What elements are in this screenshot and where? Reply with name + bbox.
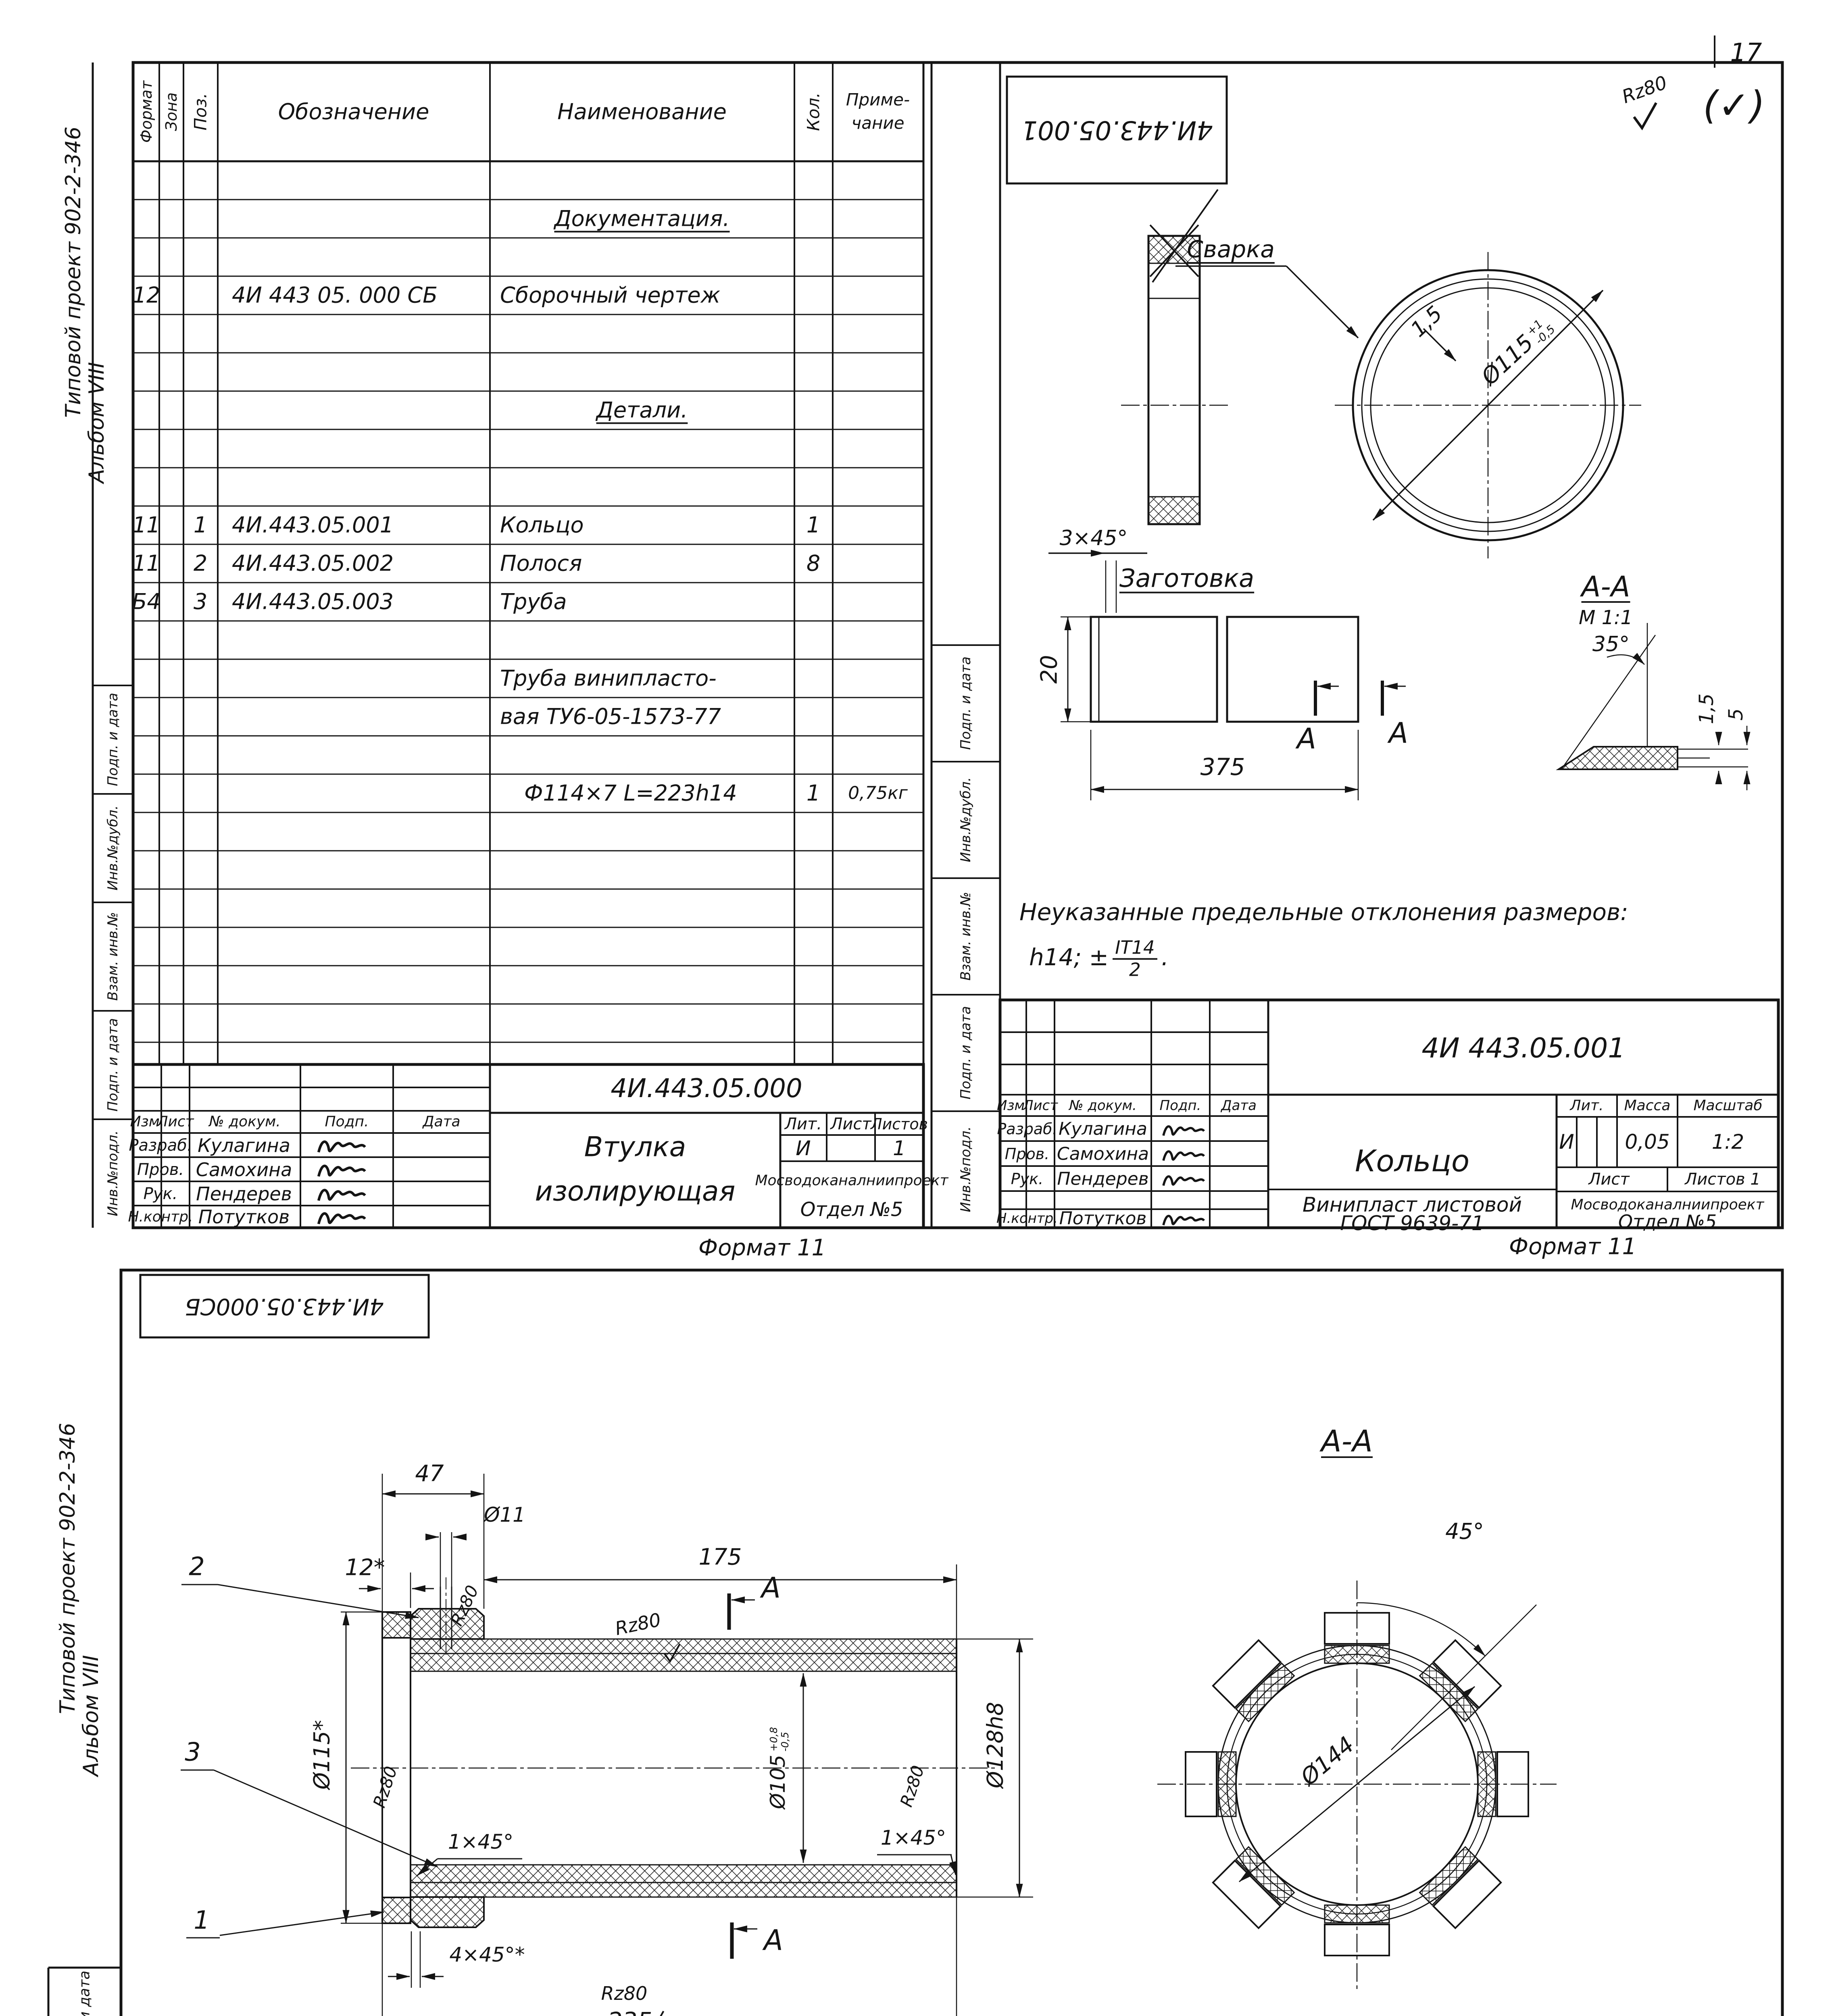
section-aa-scale: М 1:1 (1579, 606, 1633, 629)
spec-row-poz: 1 (194, 512, 207, 538)
frame-col-label: Инв.№подл. (105, 1131, 121, 1216)
spec-header-kol: Кол. (804, 92, 823, 131)
frame-col-label: Взам. инв.№ (105, 912, 121, 1001)
spec-row-poz: 2 (194, 551, 207, 576)
spec-header-primechanie: чание (851, 113, 904, 133)
spec-row-format: 11 (133, 551, 160, 576)
leader-pos-2: 2 (189, 1552, 204, 1581)
spec-row-name: Кольцо (500, 512, 584, 538)
spec-row-name: Ф114×7 L=223h14 (524, 781, 737, 806)
section-mark-a: А (1297, 722, 1316, 755)
spec-header-naimenovanie: Наименование (557, 99, 727, 125)
dim-45deg: 45° (1445, 1519, 1484, 1544)
tb-role: Рук. (1011, 1170, 1043, 1188)
dim-d128: Ø128h8 (983, 1702, 1008, 1788)
tb-role: Пров. (137, 1160, 184, 1179)
tb-list-header: Лист (1588, 1170, 1629, 1189)
tb-scale-header: Масштаб (1693, 1098, 1762, 1114)
frame-col-label: Подп. и дата (77, 1970, 93, 2016)
tb-role: Рук. (144, 1185, 178, 1203)
titleblock-part-name: Кольцо (1355, 1144, 1469, 1179)
spec-header-poz: Поз. (191, 93, 210, 131)
tb-person: Кулагина (1059, 1119, 1147, 1139)
spec-header-oboznachenie: Обозначение (278, 99, 429, 125)
tb-person: Потутков (198, 1206, 290, 1228)
tb-person: Потутков (1059, 1208, 1147, 1229)
tb-mass-header: Масса (1624, 1098, 1671, 1114)
section-aa-title: А-А (1321, 1424, 1373, 1459)
margin-album-top: Альбом VIII (85, 362, 109, 483)
spec-row-qty: 8 (807, 551, 820, 576)
tb-role: Пров. (1005, 1145, 1049, 1163)
tb-person: Пендерев (196, 1183, 292, 1205)
spec-row-name: Труба (500, 589, 567, 614)
dim-5-wedge: 5 (1725, 708, 1747, 721)
tb-person: Самохина (196, 1159, 292, 1181)
dim-chamfer-1x45: 1×45° (448, 1830, 513, 1854)
weld-label: Сварка (1187, 235, 1275, 263)
tb-scale-value: 1:2 (1712, 1130, 1744, 1154)
spec-row-format: 12 (133, 283, 160, 308)
margin-album-bottom: Альбом VIII (79, 1655, 103, 1776)
spec-row-poz: 3 (194, 589, 207, 614)
roughness-rz80: Rz80 (601, 1983, 648, 2004)
tb-col-list: Лист (1023, 1098, 1058, 1114)
dim-chamfer-1x45: 1×45° (881, 1826, 946, 1849)
tb-organization: Мосводоканалниипроект (755, 1173, 948, 1189)
tolerance-note-line1: Неуказанные предельные отклонения размер… (1019, 898, 1628, 926)
frame-col-label: Инв.№дубл. (105, 805, 121, 890)
section-mark-a: А (764, 1924, 783, 1957)
frame-col-label: Подп. и дата (105, 693, 121, 786)
stamp-rotated-ring: 4И.443.05.001 (1021, 115, 1213, 145)
spec-row-format: 11 (133, 512, 160, 538)
spec-row-name: Труба винипласто- (500, 666, 717, 691)
frame-col-label: Подп. и дата (958, 1006, 974, 1100)
section-mark-a: А (1389, 716, 1408, 750)
format-label: Формат 11 (698, 1235, 826, 1261)
leader-pos-1: 1 (194, 1906, 209, 1935)
tb-role: Н.контр. (996, 1210, 1058, 1227)
tb-listov-header: Листов (871, 1115, 928, 1133)
titleblock-designation: 4И.443.05.000 (611, 1074, 802, 1104)
spec-row-qty: 1 (807, 512, 820, 538)
titleblock-part-name: изолирующая (535, 1176, 736, 1208)
tb-col-podp: Подп. (325, 1114, 369, 1130)
tb-role: Разраб. (129, 1136, 192, 1155)
stamp-rotated-assembly: 4И.443.05.000СБ (185, 1293, 383, 1320)
dim-d11: Ø11 (484, 1503, 525, 1527)
dim-35deg: 35° (1592, 632, 1630, 656)
dim-235: 235 (608, 2007, 652, 2016)
dim-20: 20 (1036, 655, 1063, 683)
format-label: Формат 11 (1509, 1234, 1636, 1260)
tb-lit-value: И (1559, 1130, 1574, 1154)
spec-row-note: 0,75кг (848, 783, 908, 804)
tb-lit-header: Лит. (1570, 1098, 1604, 1114)
spec-section-details: Детали. (596, 398, 688, 423)
tb-person: Самохина (1057, 1144, 1149, 1164)
frame-col-label: Взам. инв.№ (958, 892, 974, 981)
spec-row-designation: 4И.443.05.003 (232, 589, 394, 614)
page-number: 17 (1730, 38, 1762, 67)
frame-col-label: Инв.№дубл. (958, 777, 974, 862)
leader-pos-3: 3 (185, 1737, 200, 1767)
dim-d105: Ø105+0,8-0,5 (766, 1727, 790, 1809)
tb-department: Отдел №5 (800, 1198, 903, 1221)
spec-row-qty: 1 (807, 781, 820, 806)
spec-header-zona: Зона (163, 92, 180, 131)
blank-title: Заготовка (1119, 564, 1254, 593)
tb-person: Кулагина (198, 1135, 290, 1156)
dim-47: 47 (415, 1461, 444, 1487)
spec-row-designation: 4И 443 05. 000 СБ (232, 283, 438, 308)
spec-section-documentation: Документация. (554, 206, 729, 231)
tb-col-data: Дата (423, 1114, 460, 1130)
spec-header-primechanie: Приме- (846, 90, 910, 110)
frame-col-label: Инв.№подл. (958, 1127, 974, 1212)
dim-175: 175 (699, 1544, 742, 1570)
tb-mass-value: 0,05 (1625, 1130, 1669, 1154)
dim-1-5-wedge: 1,5 (1695, 694, 1718, 724)
spec-row-designation: 4И.443.05.001 (232, 512, 394, 538)
titleblock-part-name: Втулка (584, 1131, 686, 1163)
spec-row-name: Сборочный чертеж (500, 283, 720, 308)
tb-col-data: Дата (1221, 1098, 1257, 1114)
tb-lit-header: Лит. (785, 1115, 822, 1133)
dim-375: 375 (1200, 753, 1245, 781)
margin-project-bottom: Типовой проект 902-2-346 (56, 1423, 80, 1714)
section-mark-a: А (761, 1571, 781, 1604)
tb-col-doc: № докум. (209, 1114, 280, 1130)
spec-row-format: Б4 (132, 589, 160, 614)
tb-material: ГОСТ 9639-71 (1340, 1212, 1484, 1235)
frame-col-label: Подп. и дата (105, 1018, 121, 1112)
roughness-bracket-mark: (✓) (1703, 83, 1765, 128)
tb-role: Разраб. (997, 1120, 1057, 1138)
frame-col-label: Подп. и дата (958, 656, 974, 750)
spec-row-name: Полося (500, 551, 582, 576)
tb-listov-value: 1 (893, 1137, 906, 1160)
drawing-sheet: 17 Типовой проект 902-2-346 Альбом VIII … (0, 0, 1834, 2016)
tb-lit-value: И (796, 1137, 811, 1160)
tb-col-podp: Подп. (1160, 1098, 1201, 1114)
tb-listov-value: Листов 1 (1685, 1170, 1761, 1189)
tb-person: Пендерев (1057, 1169, 1148, 1189)
dim-chamfer-4x45: 4×45°* (449, 1943, 525, 1966)
tb-department: Отдел №5 (1618, 1211, 1717, 1233)
tb-list-header: Лист (830, 1115, 871, 1133)
dim-d115: Ø115* (309, 1720, 335, 1790)
section-aa-title: А-А (1581, 570, 1630, 603)
spec-row-name: вая ТУ6-05-1573-77 (500, 704, 721, 729)
tolerance-note-line2: h14; ±IT142. (1029, 937, 1169, 980)
tb-col-list: Лист (157, 1114, 194, 1130)
tb-col-doc: № докум. (1069, 1098, 1137, 1114)
titleblock-designation: 4И 443.05.001 (1421, 1033, 1625, 1064)
spec-row-designation: 4И.443.05.002 (232, 551, 394, 576)
dim-12: 12* (345, 1555, 385, 1581)
tb-role: Н.контр. (128, 1209, 193, 1225)
dim-chamfer-3x45: 3×45° (1060, 526, 1128, 550)
spec-header-format: Формат (138, 81, 155, 143)
margin-project-top: Типовой проект 902-2-346 (61, 127, 85, 418)
